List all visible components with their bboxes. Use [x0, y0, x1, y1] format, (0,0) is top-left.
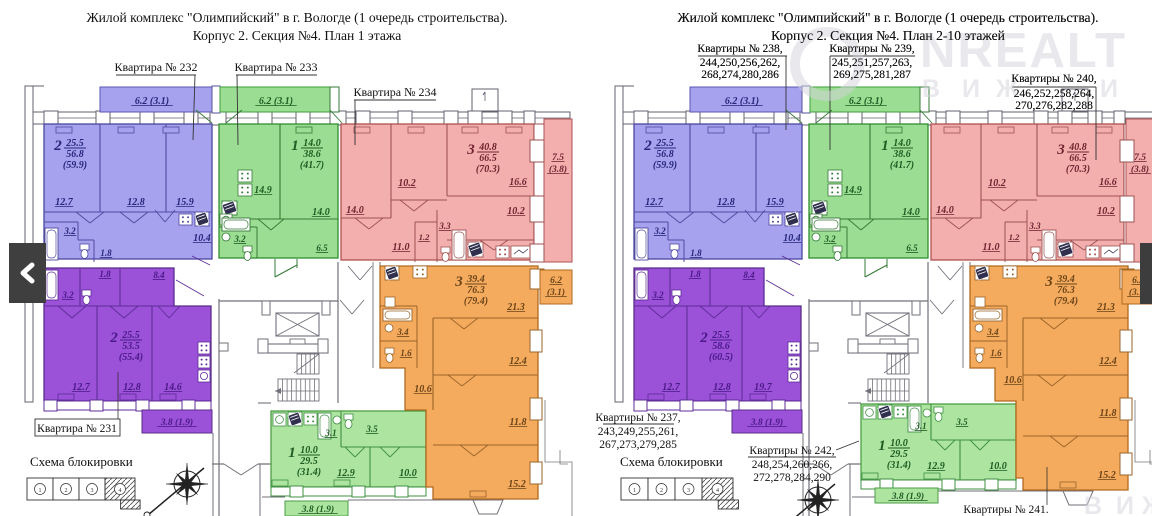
- svg-text:И: И: [1100, 75, 1118, 103]
- svg-text:39.4: 39.4: [466, 274, 485, 285]
- svg-text:2: 2: [109, 330, 118, 346]
- svg-text:14.0: 14.0: [893, 138, 911, 149]
- svg-text:(41.7): (41.7): [300, 160, 324, 171]
- svg-text:1.2: 1.2: [1009, 232, 1020, 242]
- svg-text:Корпус 2. Секция №4. План 1 эт: Корпус 2. Секция №4. План 1 этажа: [193, 28, 402, 43]
- svg-text:Квартиры № 239,: Квартиры № 239,: [829, 43, 914, 55]
- svg-text:246,252,258,264,: 246,252,258,264,: [1014, 88, 1095, 100]
- svg-text:3: 3: [1056, 142, 1065, 158]
- svg-text:1.2: 1.2: [419, 232, 430, 242]
- svg-text:3: 3: [1044, 274, 1053, 290]
- svg-text:6.5: 6.5: [316, 243, 328, 253]
- svg-text:270,276,282,288: 270,276,282,288: [1015, 100, 1093, 112]
- svg-text:243,249,255,261,: 243,249,255,261,: [598, 426, 679, 438]
- svg-text:76.3: 76.3: [467, 285, 485, 296]
- svg-text:(79.4): (79.4): [464, 296, 488, 307]
- svg-text:1.8: 1.8: [100, 248, 112, 258]
- svg-text:1: 1: [881, 138, 889, 154]
- svg-text:Квартира № 231: Квартира № 231: [37, 423, 117, 435]
- svg-text:8.4: 8.4: [743, 270, 755, 280]
- svg-text:38.6: 38.6: [892, 149, 911, 160]
- svg-text:8.4: 8.4: [153, 270, 165, 280]
- svg-text:4: 4: [716, 488, 719, 494]
- svg-text:29.5: 29.5: [889, 449, 908, 460]
- svg-text:Ж: Ж: [1141, 492, 1152, 516]
- svg-text:Квартира № 232: Квартира № 232: [114, 60, 197, 74]
- svg-text:66.5: 66.5: [479, 153, 497, 164]
- svg-text:1: 1: [39, 488, 42, 494]
- svg-text:1.8: 1.8: [690, 248, 702, 258]
- svg-text:3.3: 3.3: [438, 221, 451, 231]
- svg-text:И: И: [962, 75, 980, 103]
- svg-text:3.5: 3.5: [365, 424, 378, 434]
- svg-text:(70.3): (70.3): [476, 164, 500, 175]
- svg-text:3.2: 3.2: [63, 226, 76, 236]
- svg-text:И: И: [1116, 492, 1134, 516]
- svg-text:3.1: 3.1: [914, 421, 926, 431]
- svg-text:Схема блокировки: Схема блокировки: [30, 454, 133, 469]
- svg-text:3.2: 3.2: [823, 234, 836, 244]
- svg-text:25.5: 25.5: [711, 330, 730, 341]
- svg-text:3: 3: [91, 488, 94, 494]
- svg-text:244,250,256,262,: 244,250,256,262,: [700, 57, 781, 69]
- svg-text:1: 1: [878, 438, 886, 454]
- svg-text:Квартира № 234: Квартира № 234: [353, 85, 436, 99]
- svg-text:25.5: 25.5: [65, 138, 84, 149]
- svg-text:(31.4): (31.4): [297, 467, 321, 478]
- svg-text:(55.4): (55.4): [119, 352, 143, 363]
- svg-text:29.5: 29.5: [299, 456, 318, 467]
- svg-text:245,251,257,263,: 245,251,257,263,: [832, 57, 913, 69]
- svg-text:3.2: 3.2: [651, 290, 664, 300]
- svg-text:56.8: 56.8: [66, 149, 84, 160]
- svg-text:268,274,280,286: 268,274,280,286: [701, 69, 779, 81]
- svg-text:В: В: [1084, 492, 1102, 516]
- svg-text:10.0: 10.0: [300, 445, 318, 456]
- svg-text:6.5: 6.5: [906, 243, 918, 253]
- svg-text:2: 2: [643, 138, 652, 154]
- svg-text:Квартиры № 241.: Квартиры № 241.: [963, 504, 1048, 516]
- svg-text:1: 1: [633, 488, 636, 494]
- svg-text:1.6: 1.6: [400, 348, 412, 358]
- svg-text:3.1: 3.1: [324, 428, 336, 438]
- svg-text:В: В: [922, 75, 940, 103]
- svg-text:3.2: 3.2: [233, 234, 246, 244]
- svg-text:272,278,284,290: 272,278,284,290: [753, 472, 831, 484]
- svg-text:Схема блокировки: Схема блокировки: [620, 454, 723, 469]
- svg-text:25.5: 25.5: [655, 138, 674, 149]
- svg-text:3.2: 3.2: [653, 226, 666, 236]
- svg-text:3.4: 3.4: [986, 327, 999, 337]
- svg-text:Квартиры № 240,: Квартиры № 240,: [1011, 73, 1096, 85]
- svg-text:56.8: 56.8: [656, 149, 674, 160]
- svg-text:66.5: 66.5: [1069, 153, 1087, 164]
- svg-text:(60.5): (60.5): [709, 352, 733, 363]
- svg-text:1.8: 1.8: [689, 269, 701, 279]
- svg-text:39.4: 39.4: [1056, 274, 1075, 285]
- svg-text:1: 1: [291, 138, 299, 154]
- svg-text:3: 3: [454, 274, 463, 290]
- svg-text:10.0: 10.0: [890, 438, 908, 449]
- svg-text:(70.3): (70.3): [1066, 164, 1090, 175]
- svg-text:Квартиры № 237,: Квартиры № 237,: [595, 412, 680, 424]
- svg-text:3.3: 3.3: [1028, 221, 1041, 231]
- svg-text:3.4: 3.4: [396, 327, 409, 337]
- svg-text:58.6: 58.6: [712, 341, 730, 352]
- svg-text:3.5: 3.5: [955, 417, 968, 427]
- svg-text:3: 3: [687, 488, 690, 494]
- svg-text:4: 4: [119, 488, 122, 494]
- svg-text:76.3: 76.3: [1057, 285, 1075, 296]
- svg-text:25.5: 25.5: [121, 330, 140, 341]
- svg-text:40.8: 40.8: [478, 142, 497, 153]
- svg-text:2: 2: [660, 488, 663, 494]
- svg-text:38.6: 38.6: [302, 149, 321, 160]
- svg-text:(79.4): (79.4): [1054, 296, 1078, 307]
- svg-text:269,275,281,287: 269,275,281,287: [833, 69, 911, 81]
- svg-text:Квартиры № 238,: Квартиры № 238,: [697, 43, 782, 55]
- svg-text:(31.4): (31.4): [887, 460, 911, 471]
- svg-text:40.8: 40.8: [1068, 142, 1087, 153]
- svg-text:1.8: 1.8: [99, 269, 111, 279]
- svg-text:Квартиры № 242,: Квартиры № 242,: [749, 445, 834, 457]
- svg-text:Жилой комплекс "Олимпийский" в: Жилой комплекс "Олимпийский" в г. Вологд…: [86, 10, 507, 26]
- svg-text:1: 1: [288, 445, 296, 461]
- svg-text:(59.9): (59.9): [63, 160, 87, 171]
- svg-text:14.0: 14.0: [303, 138, 321, 149]
- svg-text:Жилой комплекс "Олимпийский" в: Жилой комплекс "Олимпийский" в г. Вологд…: [677, 10, 1098, 26]
- svg-text:248,254,260,266,: 248,254,260,266,: [752, 459, 833, 471]
- svg-text:53.5: 53.5: [122, 341, 140, 352]
- svg-text:3.2: 3.2: [61, 290, 74, 300]
- svg-text:Корпус 2. Секция №4. План 2-10: Корпус 2. Секция №4. План 2-10 этажей: [771, 28, 1005, 43]
- svg-text:Квартира № 233: Квартира № 233: [234, 60, 317, 74]
- svg-text:2: 2: [699, 330, 708, 346]
- svg-text:(59.9): (59.9): [653, 160, 677, 171]
- svg-text:2: 2: [65, 488, 68, 494]
- svg-text:(41.7): (41.7): [890, 160, 914, 171]
- svg-text:267,273,279,285: 267,273,279,285: [599, 439, 677, 451]
- svg-text:1.6: 1.6: [990, 348, 1002, 358]
- svg-text:3: 3: [466, 142, 475, 158]
- svg-text:2: 2: [53, 138, 62, 154]
